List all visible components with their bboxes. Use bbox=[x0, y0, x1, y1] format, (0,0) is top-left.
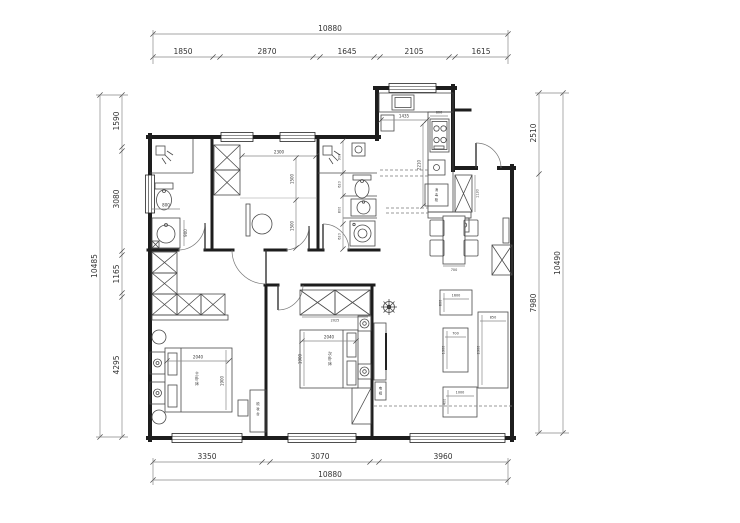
living-sofa-d: 850 bbox=[490, 316, 496, 320]
living-table-h: 1300 bbox=[442, 346, 446, 355]
kitchen-dim-counter: 1435 bbox=[399, 114, 410, 119]
dim-top-4: 2105 bbox=[404, 47, 423, 56]
living-room: 1600 800 700 1300 850 2300 1000 400 电 视 bbox=[374, 290, 512, 417]
dim-bottom-1: 3350 bbox=[197, 452, 216, 461]
window-left-bath bbox=[146, 175, 155, 213]
counter-appliance-icon bbox=[428, 160, 445, 175]
dim-left-1: 1590 bbox=[112, 111, 121, 130]
shoe-cabinet-icon bbox=[455, 175, 472, 212]
study-dim-h2: 1500 bbox=[290, 220, 295, 231]
dimension-chain-top: 10880 1850 2870 1645 2105 1615 bbox=[150, 24, 510, 64]
sterilizer-cabinet: 消 毒 柜 bbox=[425, 184, 448, 206]
entry-dining: 1130 700 bbox=[430, 175, 512, 275]
living-stand-h: 400 bbox=[443, 399, 447, 405]
stool-icon bbox=[152, 410, 166, 424]
dining-chair bbox=[464, 220, 478, 236]
bath2-dim-1: 900 bbox=[338, 154, 342, 160]
dimension-chain-left: 10485 1590 3080 1165 4295 bbox=[90, 92, 128, 439]
bed-master: 2040 1900 主 卧 床 bbox=[164, 348, 232, 412]
nightstand-icon bbox=[150, 352, 165, 374]
bath2-dim-3: 800 bbox=[338, 207, 342, 213]
closet-l-shape bbox=[152, 252, 228, 320]
dim-top-overall: 10880 bbox=[318, 24, 342, 33]
dressing-table: 梳 妆 台 bbox=[238, 390, 266, 432]
study-dim-h1: 1500 bbox=[290, 173, 295, 184]
hall-cabinet-icon bbox=[492, 245, 512, 275]
bed1-dim-l: 1900 bbox=[220, 375, 225, 386]
dim-top-5: 1615 bbox=[471, 47, 490, 56]
dim-top-2: 2870 bbox=[257, 47, 276, 56]
dining-dim-table: 700 bbox=[451, 268, 457, 272]
living-bench-w: 1600 bbox=[452, 294, 461, 298]
desk-strip bbox=[246, 204, 250, 236]
living-sofa-w: 2300 bbox=[477, 346, 481, 355]
bed-second: 2040 1900 次 卧 床 bbox=[298, 330, 359, 388]
bed2-dim-l: 1900 bbox=[298, 353, 303, 364]
window-kitchen bbox=[389, 84, 436, 93]
sofa: 850 2300 bbox=[477, 312, 509, 388]
stool-icon bbox=[252, 214, 272, 234]
dining-table bbox=[443, 216, 465, 264]
appliance-label-3: 柜 bbox=[435, 197, 439, 202]
window-top-2 bbox=[280, 133, 315, 142]
floor-plan-page: 10880 1850 2870 1645 2105 1615 3350 3070… bbox=[0, 0, 740, 523]
window-bedroom1 bbox=[172, 434, 242, 443]
appliance-label-1: 消 bbox=[435, 187, 439, 192]
small-appliance bbox=[381, 115, 394, 131]
dresser-label-3: 台 bbox=[256, 411, 260, 416]
bedroom-2: 2025 2040 1900 次 卧 床 bbox=[298, 290, 372, 424]
floor-plan-drawing: 10880 1850 2870 1645 2105 1615 3350 3070… bbox=[0, 0, 740, 523]
dim-right-1: 2510 bbox=[529, 123, 538, 142]
dim-right-2: 7980 bbox=[529, 293, 538, 312]
dim-left-3: 1165 bbox=[112, 264, 121, 283]
kitchen-dim-stove: 600 bbox=[436, 111, 442, 115]
dim-right-overall: 10490 bbox=[553, 251, 562, 275]
dim-bottom-overall: 10880 bbox=[318, 470, 342, 479]
dim-top-3: 1645 bbox=[337, 47, 356, 56]
bath2-dim-4: 620 bbox=[338, 233, 342, 239]
dimension-chain-bottom: 3350 3070 3960 10880 bbox=[150, 452, 510, 485]
dim-left-overall: 10485 bbox=[90, 254, 99, 278]
toilet-icon bbox=[353, 175, 371, 198]
dresser-label-2: 妆 bbox=[256, 406, 260, 411]
wardrobe-icon bbox=[214, 145, 240, 195]
dim-bottom-2: 3070 bbox=[310, 452, 329, 461]
dresser-stool bbox=[238, 400, 248, 416]
dresser-label-1: 梳 bbox=[256, 401, 260, 406]
study-room: 2300 1500 1500 bbox=[214, 145, 319, 251]
nightstand-icon bbox=[150, 382, 165, 404]
stove-icon bbox=[430, 119, 449, 152]
kitchen-counter-top bbox=[379, 93, 453, 112]
dim-top-1: 1850 bbox=[173, 47, 192, 56]
kitchen-dim-depth: 2210 bbox=[417, 159, 422, 170]
bath1-dim-toilet: 800 bbox=[162, 203, 170, 208]
bed2-dim-w: 2040 bbox=[324, 335, 335, 340]
living-bench-h: 800 bbox=[439, 300, 443, 306]
plant-icon bbox=[381, 299, 397, 315]
dim-left-4: 4295 bbox=[112, 355, 121, 374]
window-top-1 bbox=[221, 133, 253, 142]
bathroom-2: 900 620 800 620 bbox=[318, 138, 377, 251]
dim-left-2: 3080 bbox=[112, 189, 121, 208]
nightstand-icon bbox=[358, 364, 371, 379]
study-dim-width: 2300 bbox=[274, 150, 285, 155]
door-bedroom2 bbox=[278, 285, 303, 310]
dim-bottom-3: 3960 bbox=[433, 452, 452, 461]
dining-chair bbox=[464, 240, 478, 256]
dimension-chain-right: 2510 7980 10490 bbox=[529, 90, 569, 435]
window-living bbox=[410, 434, 505, 443]
dining-chair bbox=[430, 240, 444, 256]
kitchen-sink-icon bbox=[392, 95, 414, 110]
dining-chair bbox=[430, 220, 444, 236]
door-entry bbox=[476, 143, 501, 168]
window-bedroom2 bbox=[288, 434, 356, 443]
door-bath2 bbox=[323, 224, 349, 250]
corner-desk bbox=[352, 388, 371, 424]
wall-shelf bbox=[503, 218, 509, 243]
door-bedroom1 bbox=[232, 250, 266, 284]
dining-dim-cabinet: 1130 bbox=[476, 189, 480, 198]
washing-machine-icon bbox=[350, 221, 375, 246]
tv-label-2: 视 bbox=[379, 391, 383, 396]
appliance-label-2: 毒 bbox=[435, 192, 439, 197]
shower-icon bbox=[156, 146, 173, 164]
bench-seat: 1600 800 bbox=[439, 290, 473, 315]
bed2-dim-wardrobe: 2025 bbox=[331, 319, 340, 323]
living-stand-w: 1000 bbox=[456, 391, 465, 395]
nightstand-icon bbox=[358, 316, 371, 331]
living-table-w: 700 bbox=[452, 332, 458, 336]
tv-cabinet: 电 视 bbox=[374, 323, 386, 400]
bathroom-1: 800 900 bbox=[150, 139, 193, 248]
water-heater-icon bbox=[352, 143, 365, 156]
tv-stand-low: 1000 400 bbox=[443, 387, 478, 417]
bath2-dim-2: 620 bbox=[338, 181, 342, 187]
wardrobe-icon bbox=[300, 290, 370, 315]
coffee-table: 700 1300 bbox=[442, 328, 469, 372]
bed1-dim-w: 2040 bbox=[193, 355, 204, 360]
kitchen: 消 毒 柜 1435 600 2210 bbox=[378, 93, 471, 218]
tv-label-1: 电 bbox=[379, 386, 383, 391]
stool-icon bbox=[152, 330, 166, 344]
bath1-dim-vanity: 900 bbox=[183, 229, 188, 237]
sink-icon bbox=[351, 199, 376, 216]
